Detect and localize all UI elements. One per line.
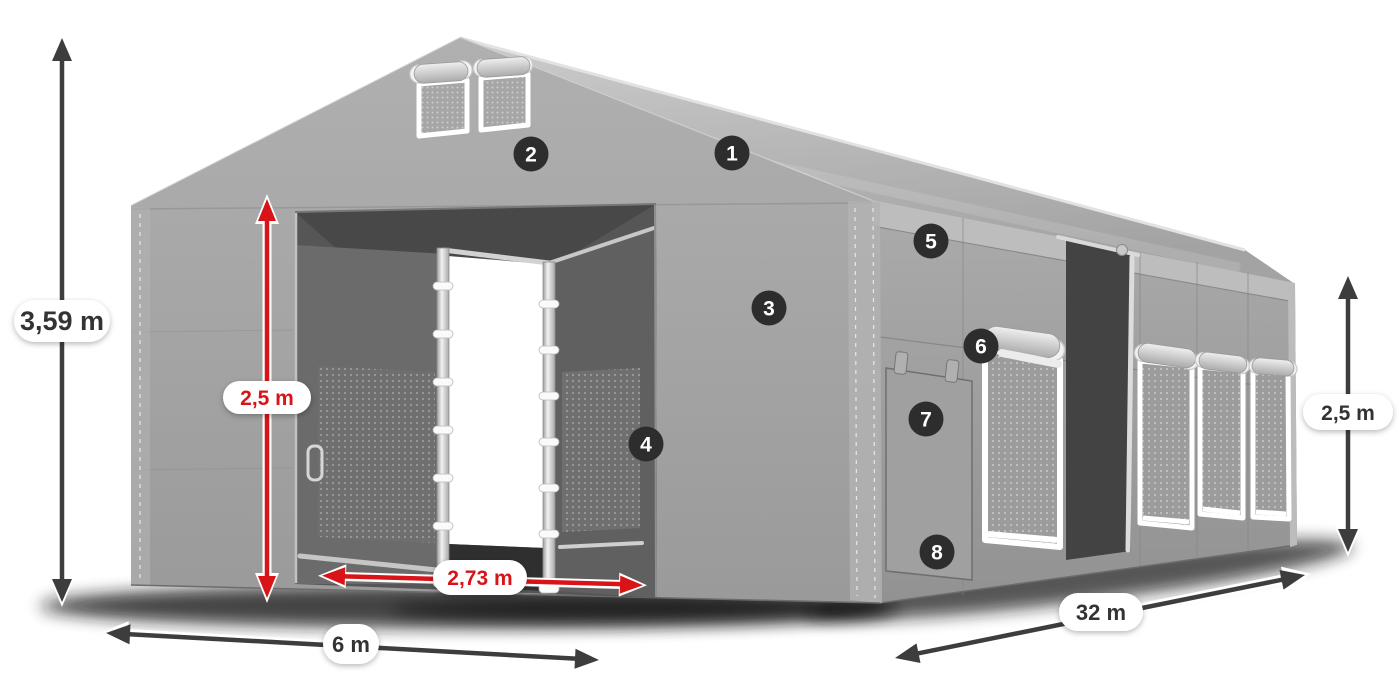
- tent-dimension-diagram: 3,59 m 2,5 m 2,73 m 6 m: [0, 0, 1400, 700]
- callout-badge-6[interactable]: 6: [964, 329, 999, 364]
- front-width-label: 6 m: [332, 632, 370, 657]
- vent-rolled-cover: [413, 61, 468, 84]
- callout-badge-1[interactable]: 1: [715, 136, 750, 171]
- window-sill: [1256, 512, 1286, 514]
- callout-badge-4[interactable]: 4: [629, 427, 664, 462]
- dimension-front-width: 6 m: [100, 621, 605, 672]
- side-window-2: [1135, 342, 1199, 528]
- side-height-label: 2,5 m: [1321, 402, 1375, 425]
- gable-vent-right: [474, 56, 533, 130]
- side-length-label: 32 m: [1076, 600, 1126, 625]
- interior-left-mesh: [318, 366, 435, 543]
- svg-text:5: 5: [925, 231, 937, 254]
- svg-text:4: 4: [640, 434, 652, 457]
- front-right-corner-post: [848, 201, 882, 603]
- callout-badge-5[interactable]: 5: [914, 224, 949, 259]
- door-strap-tab: [894, 351, 908, 374]
- svg-text:3: 3: [763, 298, 775, 321]
- tent-illustration: 3,59 m 2,5 m 2,73 m 6 m: [0, 0, 1400, 700]
- see-through-gap: [448, 256, 545, 548]
- sliding-door-roller: [1117, 245, 1128, 256]
- sliding-door-opening: [1058, 237, 1138, 560]
- svg-text:8: 8: [931, 542, 943, 565]
- vent-rolled-cover: [476, 56, 530, 78]
- door-strap-tab: [945, 359, 959, 382]
- callout-badge-8[interactable]: 8: [920, 535, 955, 570]
- callout-badge-2[interactable]: 2: [514, 137, 549, 172]
- entrance-opening: [295, 204, 657, 598]
- side-window-4: [1249, 357, 1297, 519]
- svg-text:1: 1: [726, 143, 738, 166]
- door-width-label: 2,73 m: [447, 567, 512, 590]
- rolled-window-cover: [1251, 357, 1294, 377]
- svg-text:6: 6: [975, 336, 987, 359]
- interior-right-mesh: [562, 368, 640, 532]
- dimension-front-height: 3,59 m: [14, 33, 110, 607]
- gable-vent-left: [410, 61, 472, 136]
- side-window-3: [1196, 351, 1250, 518]
- opening-right-jamb: [655, 205, 656, 597]
- callout-badge-7[interactable]: 7: [909, 402, 944, 437]
- svg-text:2: 2: [525, 144, 537, 167]
- door-height-label: 2,5 m: [240, 387, 294, 410]
- svg-text:7: 7: [920, 409, 932, 432]
- dimension-side-height: 2,5 m: [1303, 271, 1393, 557]
- callout-badge-3[interactable]: 3: [752, 291, 787, 326]
- front-height-label: 3,59 m: [20, 306, 104, 336]
